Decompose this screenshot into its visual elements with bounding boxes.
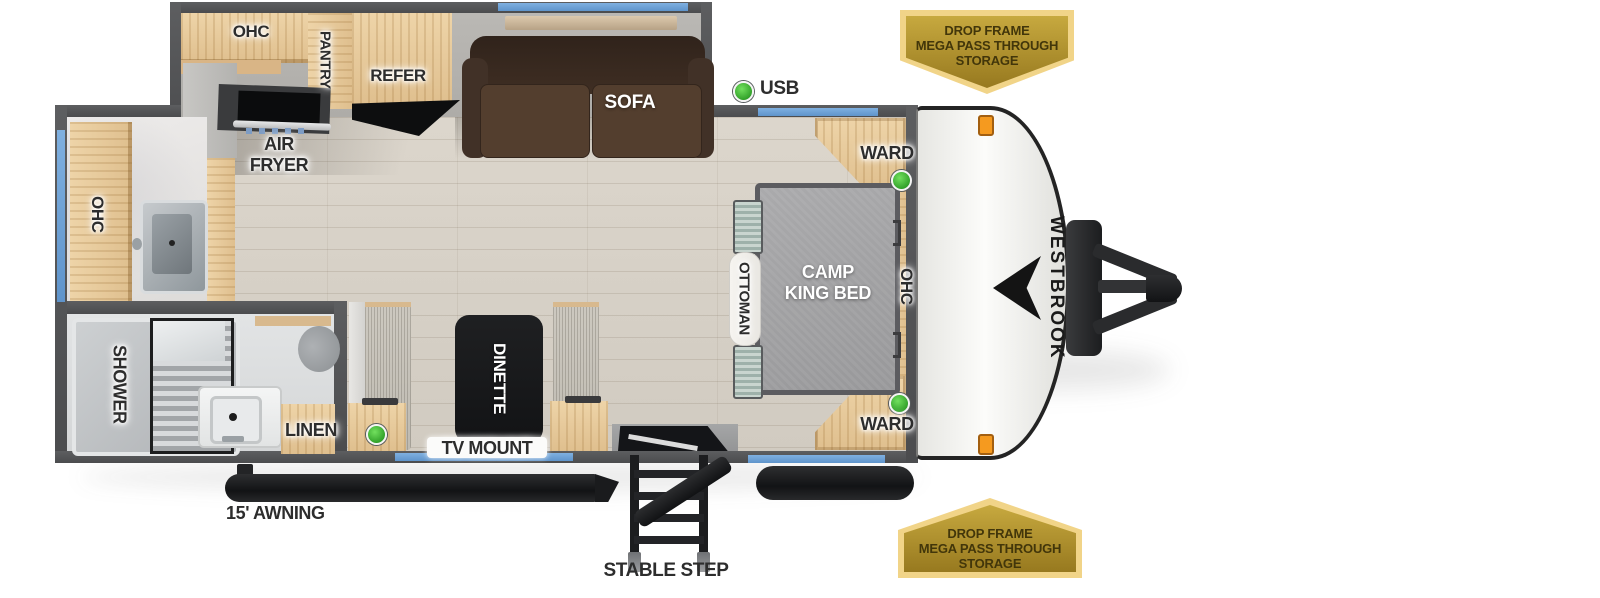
- ward-rear-led-indicator: [889, 393, 910, 414]
- bath-wall-mid: [67, 301, 347, 314]
- toilet-tank: [255, 316, 331, 326]
- sofa-cushion-left: [480, 84, 590, 158]
- bath-window-left: [57, 130, 65, 302]
- step-rung-4: [634, 536, 704, 544]
- label-sofa: SOFA: [580, 92, 680, 114]
- vanity-drain: [169, 240, 175, 246]
- label-pantry: PANTRY: [312, 16, 338, 104]
- bed-bracket-bottom: [893, 332, 901, 358]
- label-dinette: DINETTE: [486, 332, 512, 426]
- label-stable-step: STABLE STEP: [586, 560, 746, 582]
- storage-badge-bottom-text: DROP FRAME MEGA PASS THROUGH STORAGE: [898, 526, 1082, 571]
- slideout-window: [498, 3, 688, 11]
- label-bath-ohc: OHC: [84, 170, 110, 258]
- label-usb: USB: [760, 78, 810, 100]
- bedroom-window-top: [758, 108, 878, 116]
- bath-tall-cabinet: [207, 158, 235, 303]
- label-tv-mount: TV MOUNT: [427, 438, 547, 459]
- clearance-light-top: [978, 115, 994, 136]
- label-linen: LINEN: [261, 420, 361, 441]
- bed-cushion-bottom: [733, 345, 763, 399]
- clearance-light-bottom: [978, 434, 994, 455]
- label-awning: 15' AWNING: [226, 503, 366, 524]
- storage-badge-bottom: DROP FRAME MEGA PASS THROUGH STORAGE: [898, 498, 1082, 578]
- floorplan-canvas: SOFA USB AIRFRYER OHC PANTRY REFER OHC S…: [0, 0, 1600, 598]
- bed-bracket-top: [893, 220, 901, 246]
- shower-door-glass-top: [153, 321, 225, 361]
- bedroom-window-bottom: [748, 455, 885, 463]
- wall-top-left: [55, 105, 181, 117]
- label-ottoman: OTTOMAN: [731, 254, 757, 342]
- dinette-bench-right-rail: [553, 302, 599, 307]
- vanity-faucet: [132, 238, 142, 250]
- label-kitchen-ohc: OHC: [211, 22, 291, 42]
- storage-badge-top: DROP FRAME MEGA PASS THROUGH STORAGE: [900, 10, 1074, 94]
- usb-led-indicator: [733, 81, 754, 102]
- dinette-bench-left-rail: [365, 302, 411, 307]
- label-shower: SHOWER: [106, 334, 132, 434]
- bath-sink-faucet: [222, 436, 244, 442]
- hitch-coupler: [1146, 275, 1182, 302]
- awning-tube: [225, 474, 597, 502]
- bed-cushion-top: [733, 200, 763, 254]
- dinette-end-table-right-item: [565, 396, 601, 403]
- label-refer: REFER: [358, 66, 438, 86]
- storage-badge-top-text: DROP FRAME MEGA PASS THROUGH STORAGE: [900, 23, 1074, 68]
- toilet-bowl: [298, 326, 340, 372]
- refer-cabinet: [352, 13, 452, 105]
- hitch-frame-box: [1066, 220, 1102, 356]
- bumper-bar: [756, 466, 914, 500]
- dinette-led-indicator: [366, 424, 387, 445]
- label-air-fryer: AIRFRYER: [227, 134, 331, 176]
- dinette-end-table-right: [550, 401, 608, 451]
- sofa-valance: [505, 16, 677, 30]
- label-camp-king-bed: CAMPKING BED: [768, 262, 888, 304]
- hitch-cross-bar: [1098, 280, 1152, 293]
- dinette-end-table-left-item: [362, 398, 398, 405]
- ward-front-led-indicator: [891, 170, 912, 191]
- bath-sink-drain: [229, 413, 237, 421]
